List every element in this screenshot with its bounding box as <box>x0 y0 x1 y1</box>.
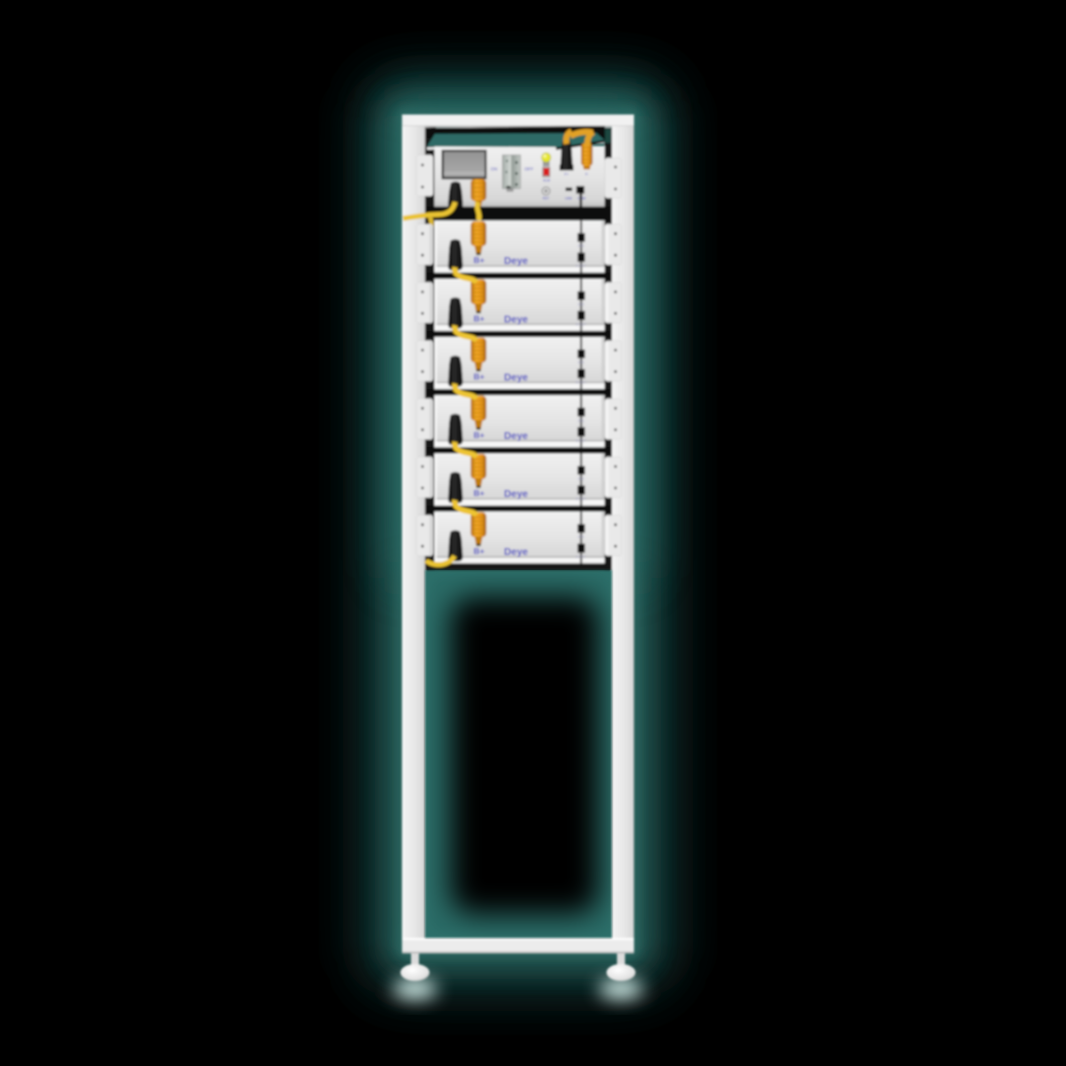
svg-text:LINK: LINK <box>565 197 573 201</box>
svg-text:RST: RST <box>543 197 550 201</box>
svg-text:ON: ON <box>491 167 498 172</box>
svg-text:OFF: OFF <box>525 167 534 172</box>
svg-text:P+: P+ <box>564 173 568 177</box>
svg-text:P-: P- <box>585 173 588 177</box>
svg-text:ALM: ALM <box>543 179 550 183</box>
